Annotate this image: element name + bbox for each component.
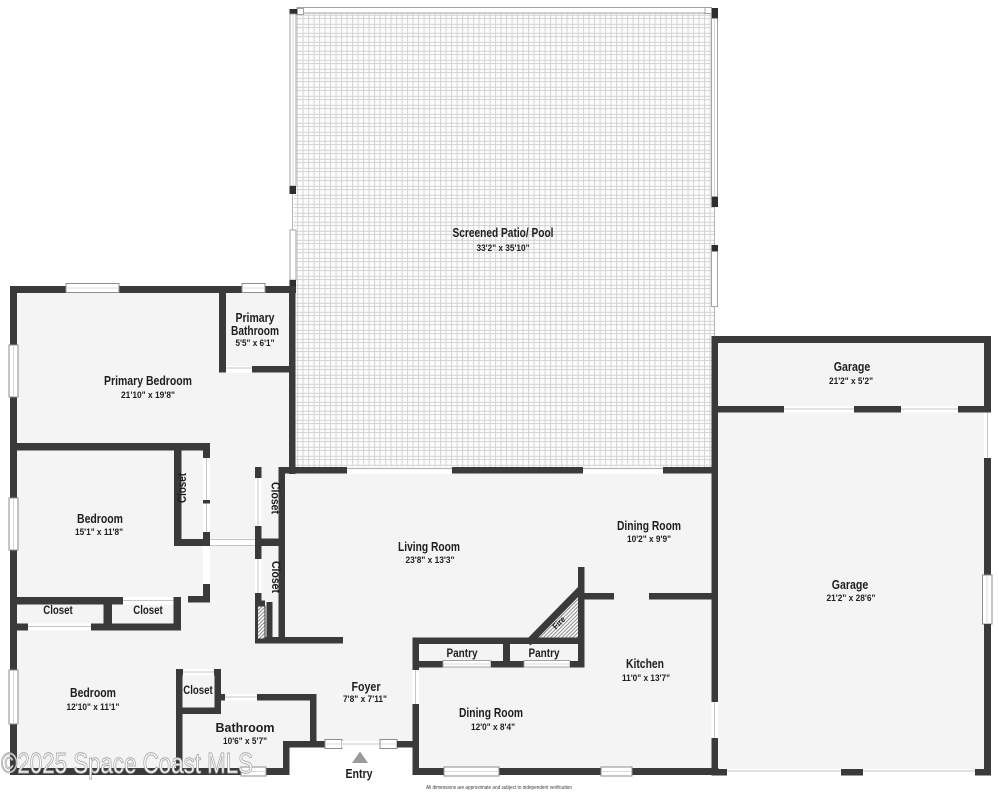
svg-text:Closet: Closet bbox=[133, 605, 163, 617]
svg-text:21'2" x 5'2": 21'2" x 5'2" bbox=[829, 376, 873, 387]
svg-text:21'10" x 19'8": 21'10" x 19'8" bbox=[121, 390, 175, 401]
svg-text:Entry: Entry bbox=[346, 767, 373, 781]
svg-text:Primary: Primary bbox=[236, 311, 275, 325]
svg-text:Bathroom: Bathroom bbox=[231, 324, 279, 338]
svg-text:33'2" x 35'10": 33'2" x 35'10" bbox=[477, 243, 530, 254]
svg-text:Kitchen: Kitchen bbox=[626, 657, 664, 671]
svg-text:5'5" x 6'1": 5'5" x 6'1" bbox=[236, 338, 275, 349]
svg-text:Bathroom: Bathroom bbox=[215, 721, 274, 735]
svg-text:Bedroom: Bedroom bbox=[70, 686, 116, 700]
svg-text:10'6" x 5'7": 10'6" x 5'7" bbox=[223, 736, 267, 747]
svg-text:Living Room: Living Room bbox=[398, 540, 460, 554]
svg-text:Closet: Closet bbox=[269, 561, 281, 593]
svg-text:Garage: Garage bbox=[834, 360, 871, 374]
svg-text:Closet: Closet bbox=[43, 605, 73, 617]
svg-text:Dining Room: Dining Room bbox=[617, 519, 681, 533]
svg-text:Pantry: Pantry bbox=[447, 648, 479, 660]
svg-text:Closet: Closet bbox=[269, 482, 281, 514]
svg-text:Bedroom: Bedroom bbox=[77, 512, 123, 526]
svg-text:Closet: Closet bbox=[183, 685, 213, 697]
svg-text:Dining Room: Dining Room bbox=[459, 706, 523, 720]
svg-text:23'8" x 13'3": 23'8" x 13'3" bbox=[406, 555, 455, 566]
svg-text:7'8" x 7'11": 7'8" x 7'11" bbox=[343, 694, 387, 705]
svg-text:Garage: Garage bbox=[832, 578, 869, 592]
svg-text:15'1" x 11'8": 15'1" x 11'8" bbox=[75, 527, 123, 538]
svg-text:10'2" x 9'9": 10'2" x 9'9" bbox=[627, 534, 671, 545]
svg-text:21'2" x 28'6": 21'2" x 28'6" bbox=[827, 593, 876, 604]
svg-text:Pantry: Pantry bbox=[529, 648, 561, 660]
svg-text:12'10" x 11'1": 12'10" x 11'1" bbox=[67, 702, 120, 713]
svg-text:Foyer: Foyer bbox=[352, 680, 381, 694]
svg-text:All dimensions are approximate: All dimensions are approximate and subje… bbox=[426, 785, 572, 791]
svg-text:Screened Patio/ Pool: Screened Patio/ Pool bbox=[453, 226, 554, 240]
svg-text:11'0" x 13'7": 11'0" x 13'7" bbox=[622, 673, 670, 684]
svg-text:12'0" x 8'4": 12'0" x 8'4" bbox=[471, 722, 515, 733]
svg-text:Closet: Closet bbox=[177, 473, 189, 503]
svg-text:©2025 Space Coast MLS: ©2025 Space Coast MLS bbox=[1, 748, 253, 780]
svg-text:Primary Bedroom: Primary Bedroom bbox=[104, 374, 192, 388]
